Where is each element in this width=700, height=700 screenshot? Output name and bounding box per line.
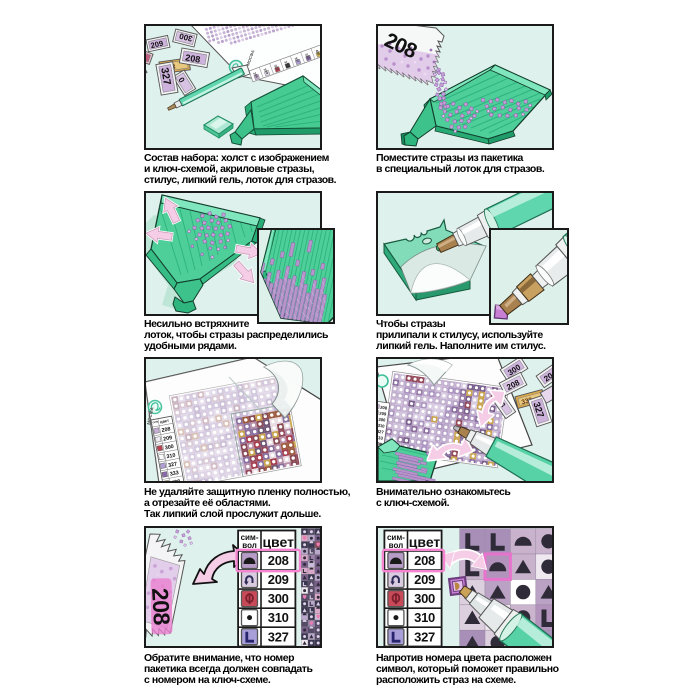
svg-text:цвет: цвет <box>409 534 441 550</box>
svg-text:208: 208 <box>380 405 388 411</box>
svg-text:300: 300 <box>378 417 386 423</box>
svg-text:300: 300 <box>268 591 289 606</box>
svg-text:300: 300 <box>414 591 435 606</box>
svg-text:208: 208 <box>268 553 289 568</box>
svg-text:208: 208 <box>414 553 435 568</box>
svg-text:209: 209 <box>414 572 435 587</box>
svg-text:327: 327 <box>414 629 435 644</box>
svg-text:310: 310 <box>414 610 435 625</box>
svg-text:208: 208 <box>147 587 175 626</box>
svg-text:209: 209 <box>268 572 289 587</box>
svg-text:327: 327 <box>268 629 289 644</box>
svg-text:цвет: цвет <box>262 534 294 550</box>
svg-text:310: 310 <box>268 610 289 625</box>
svg-text:209: 209 <box>379 411 387 417</box>
